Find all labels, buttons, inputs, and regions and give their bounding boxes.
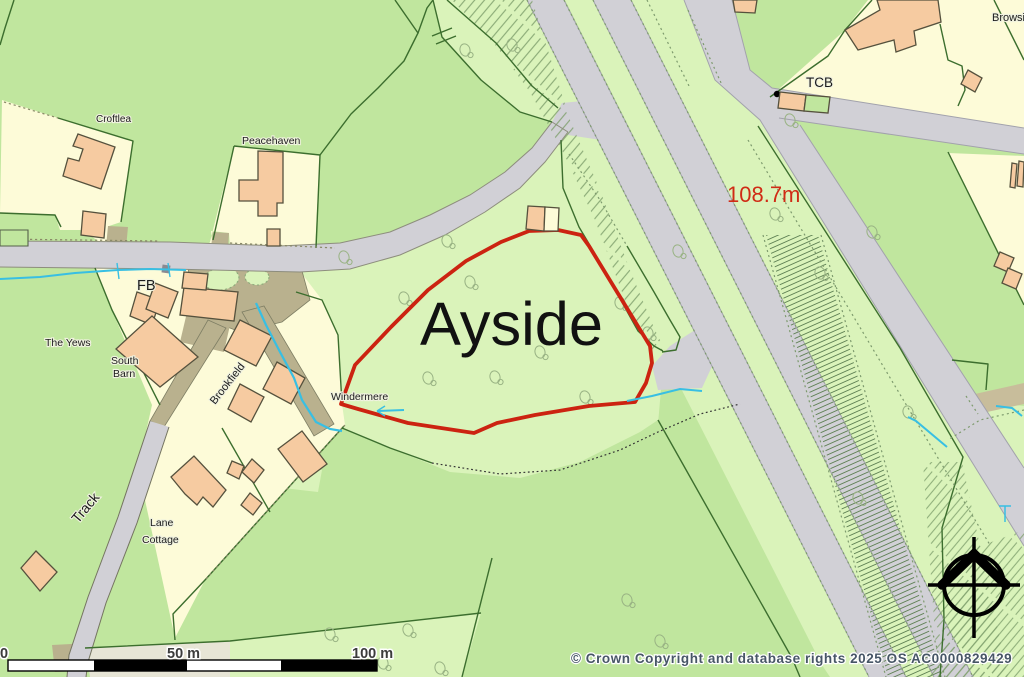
svg-text:0: 0 [0,646,8,662]
svg-text:Ayside: Ayside [420,290,603,358]
svg-text:Cottage: Cottage [142,534,179,546]
svg-text:Lane: Lane [150,517,174,529]
svg-text:Windermere: Windermere [331,391,388,403]
svg-text:Peacehaven: Peacehaven [242,135,301,147]
svg-text:South: South [111,355,139,367]
svg-text:Croftlea: Croftlea [96,114,131,125]
svg-text:The Yews: The Yews [45,337,91,349]
svg-text:Browside: Browside [992,12,1024,24]
svg-text:100 m: 100 m [352,646,393,662]
svg-text:© Crown Copyright and database: © Crown Copyright and database rights 20… [571,651,1012,666]
svg-text:TCB: TCB [806,75,833,90]
svg-text:Barn: Barn [113,368,135,380]
svg-text:108.7m: 108.7m [727,182,800,207]
svg-text:FB: FB [137,278,156,294]
svg-text:50 m: 50 m [167,646,200,662]
